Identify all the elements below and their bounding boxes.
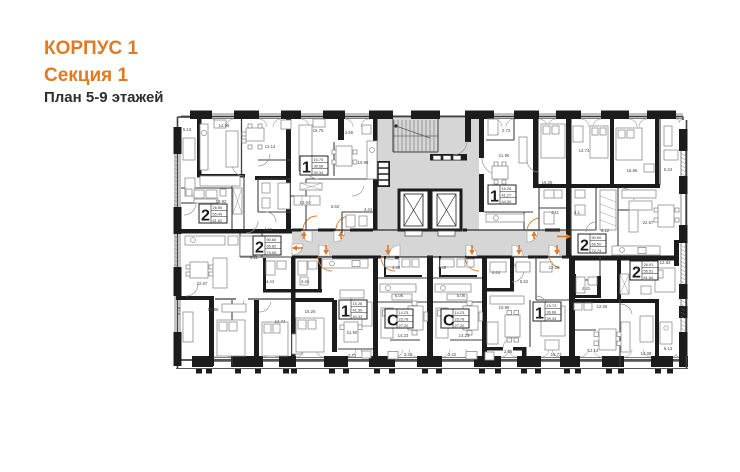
svg-text:15.73: 15.73: [547, 303, 557, 308]
svg-text:15.86: 15.86: [208, 307, 219, 312]
svg-text:9.12: 9.12: [601, 228, 610, 233]
svg-text:61.62: 61.62: [213, 218, 223, 223]
svg-text:21.90: 21.90: [499, 153, 510, 158]
svg-text:3.42: 3.42: [448, 352, 457, 357]
svg-text:72.74: 72.74: [592, 248, 603, 253]
svg-text:1: 1: [490, 189, 499, 206]
svg-text:50.60: 50.60: [267, 237, 278, 242]
svg-text:4.11: 4.11: [551, 210, 560, 215]
svg-text:44.33: 44.33: [353, 314, 363, 319]
svg-text:14.23: 14.23: [455, 310, 465, 315]
svg-text:2: 2: [201, 208, 210, 225]
svg-text:4.44: 4.44: [266, 279, 275, 284]
svg-text:26.91: 26.91: [644, 262, 654, 267]
svg-text:4.44: 4.44: [492, 270, 501, 275]
svg-text:22.67: 22.67: [197, 281, 208, 286]
svg-text:14.74: 14.74: [275, 319, 286, 324]
svg-text:15.86: 15.86: [627, 168, 638, 173]
svg-text:12.05: 12.05: [549, 265, 560, 270]
svg-text:36.68: 36.68: [314, 164, 324, 169]
svg-text:10.99: 10.99: [499, 305, 510, 310]
svg-text:2.73: 2.73: [348, 353, 357, 358]
svg-text:6.13: 6.13: [664, 346, 673, 351]
svg-text:5.06: 5.06: [395, 293, 404, 298]
svg-text:4.49: 4.49: [392, 265, 401, 270]
svg-text:66.82: 66.82: [267, 244, 277, 249]
svg-text:41.60: 41.60: [353, 308, 364, 313]
svg-text:2.73: 2.73: [502, 128, 511, 133]
svg-text:2: 2: [632, 265, 641, 282]
svg-text:14.23: 14.23: [398, 333, 409, 338]
svg-text:4.44: 4.44: [301, 279, 310, 284]
svg-text:27.20: 27.20: [399, 323, 410, 328]
svg-text:14.74: 14.74: [579, 148, 590, 153]
svg-text:3.42: 3.42: [404, 352, 413, 357]
svg-text:15.75: 15.75: [314, 157, 324, 162]
svg-text:2.65: 2.65: [504, 349, 513, 354]
svg-text:5.52: 5.52: [520, 279, 529, 284]
svg-text:23.78: 23.78: [455, 317, 465, 322]
svg-text:5.06: 5.06: [457, 293, 466, 298]
svg-text:50.60: 50.60: [592, 235, 603, 240]
svg-text:12.83: 12.83: [660, 260, 671, 265]
svg-text:1: 1: [535, 306, 544, 323]
svg-text:Секция 1: Секция 1: [44, 65, 129, 86]
svg-text:6.13: 6.13: [183, 127, 192, 132]
svg-text:КОРПУС 1: КОРПУС 1: [44, 38, 139, 59]
svg-text:15.26: 15.26: [305, 309, 316, 314]
svg-text:5.52: 5.52: [331, 204, 340, 209]
svg-text:14.08: 14.08: [219, 123, 230, 128]
svg-text:26.90: 26.90: [213, 205, 224, 210]
svg-text:12.14: 12.14: [588, 348, 599, 353]
svg-text:55.51: 55.51: [644, 269, 654, 274]
svg-text:23.78: 23.78: [399, 317, 409, 322]
svg-text:1: 1: [302, 160, 311, 177]
svg-text:1: 1: [341, 304, 350, 321]
svg-text:6.24: 6.24: [664, 167, 673, 172]
svg-text:14.08: 14.08: [641, 351, 652, 356]
svg-text:6.24: 6.24: [176, 306, 181, 315]
svg-text:27.20: 27.20: [455, 323, 466, 328]
svg-text:План 5-9 этажей: План 5-9 этажей: [44, 89, 164, 106]
svg-text:2: 2: [580, 238, 589, 255]
svg-text:12.04: 12.04: [300, 200, 311, 205]
svg-text:39.33: 39.33: [547, 316, 557, 321]
svg-text:12.14: 12.14: [265, 144, 276, 149]
svg-text:4.41: 4.41: [582, 286, 591, 291]
svg-text:15.26: 15.26: [542, 180, 553, 185]
svg-text:41.27: 41.27: [502, 193, 512, 198]
svg-text:15.75: 15.75: [313, 128, 324, 133]
svg-text:14.23: 14.23: [399, 310, 409, 315]
svg-text:73.06: 73.06: [267, 250, 277, 255]
svg-text:15.73: 15.73: [551, 352, 562, 357]
svg-text:44.00: 44.00: [502, 199, 513, 204]
svg-text:15.26: 15.26: [353, 301, 363, 306]
svg-text:2.66: 2.66: [345, 130, 354, 135]
svg-text:21.90: 21.90: [347, 330, 358, 335]
svg-text:22.67: 22.67: [643, 220, 654, 225]
svg-text:66.50: 66.50: [592, 242, 603, 247]
svg-text:36.68: 36.68: [547, 310, 557, 315]
svg-text:2: 2: [255, 240, 264, 257]
svg-text:39.34: 39.34: [314, 170, 325, 175]
svg-text:4.49: 4.49: [438, 265, 447, 270]
svg-text:61.64: 61.64: [644, 275, 655, 280]
svg-text:14.23: 14.23: [459, 333, 470, 338]
svg-text:4.41: 4.41: [264, 227, 273, 232]
svg-text:55.49: 55.49: [213, 212, 223, 217]
svg-text:15.26: 15.26: [502, 186, 512, 191]
svg-text:4.1: 4.1: [574, 210, 581, 215]
svg-text:10.99: 10.99: [358, 160, 369, 165]
svg-text:12.82: 12.82: [216, 199, 227, 204]
svg-text:4.44: 4.44: [364, 207, 373, 212]
svg-text:12.06: 12.06: [597, 304, 608, 309]
